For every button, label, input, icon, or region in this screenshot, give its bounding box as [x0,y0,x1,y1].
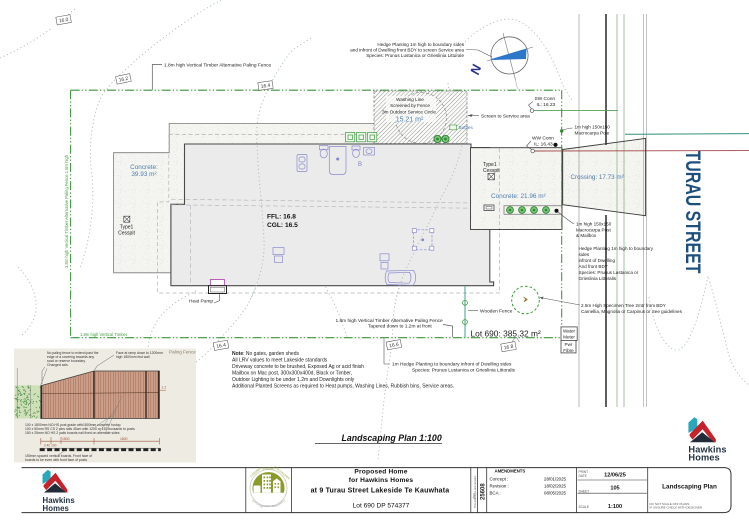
svg-text:Crossing: 17.73 m²: Crossing: 17.73 m² [571,174,624,181]
svg-text:18/02/2025: 18/02/2025 [544,484,567,489]
svg-text:SCALE: SCALE [579,505,589,509]
svg-text:SHEET: SHEET [579,490,590,494]
svg-text:2024: 2024 [472,493,476,499]
svg-text:Driveway concrete to be brushe: Driveway concrete to be brushed, Exposed… [232,364,364,370]
svg-text:Proposed Home: Proposed Home [354,469,407,476]
svg-text:infront of Dwelling: infront of Dwelling [579,258,616,263]
svg-text:TURAU STREET: TURAU STREET [681,151,704,274]
svg-text:Homes: Homes [688,453,719,463]
svg-text:Bottles: Bottles [459,125,474,130]
svg-text:Homes: Homes [43,504,70,513]
svg-text:IL: 16.43: IL: 16.43 [534,142,553,148]
svg-text:Landscaping Plan 1:100: Landscaping Plan 1:100 [342,433,442,443]
svg-text:This drawing is and remains: This drawing is and remains [473,475,477,508]
svg-text:Revision :: Revision : [490,484,509,489]
svg-text:1:100: 1:100 [608,504,622,510]
svg-text:Screen to Service area: Screen to Service area [481,114,530,120]
svg-text:IL: 16.23: IL: 16.23 [537,102,556,108]
svg-text:Paling Fence: Paling Fence [169,350,196,355]
svg-text:1.8m high Vertical Timber Alte: 1.8m high Vertical Timber Alternative Pa… [64,154,69,268]
svg-text:& Mailbox: & Mailbox [576,233,597,238]
svg-text:B: B [358,162,362,168]
svg-text:1.8m high Vertical Timber Alte: 1.8m high Vertical Timber Alternative Pa… [336,318,444,324]
svg-text:at 9 Turau Street Lakeside Te: at 9 Turau Street Lakeside Te Kauwhata [311,488,450,495]
svg-text:Grieslinia Littoralis: Grieslinia Littoralis [579,276,617,281]
svg-text:AMENDMENTS: AMENDMENTS [495,469,526,474]
svg-text:Wooden Fence: Wooden Fence [480,309,513,315]
svg-text:105: 105 [610,486,619,492]
svg-text:WW Conn: WW Conn [532,136,554,142]
svg-text:Cesspit: Cesspit [118,231,135,237]
svg-text:1.8m high Vertical Timber Alte: 1.8m high Vertical Timber Alternative Pa… [164,63,272,69]
svg-text:SW Conn: SW Conn [535,96,556,102]
svg-text:Macrocarpa Post: Macrocarpa Post [576,227,611,232]
svg-text:And front BDY: And front BDY [579,264,608,269]
svg-text:Mailbox on Mac post, 300x300x4: Mailbox on Mac post, 300x300x400d, Black… [232,371,352,377]
svg-text:Concrete:: Concrete: [130,164,158,171]
svg-text:1m high 150x150: 1m high 150x150 [576,222,612,227]
svg-text:1.2: 1.2 [162,386,167,390]
svg-text:12/06/25: 12/06/25 [604,473,626,479]
svg-text:FFL: 16.8: FFL: 16.8 [267,214,296,221]
svg-text:Screened by Fence: Screened by Fence [390,103,430,108]
svg-text:for Hawkins Homes: for Hawkins Homes [349,477,414,484]
svg-text:Species: Prunus Lustanica or: Species: Prunus Lustanica or Grieslinia … [412,368,516,374]
svg-text:Camellia, Magnolia or Carpinus: Camellia, Magnolia or Carpinus or See gu… [581,309,683,314]
svg-text:Landscaping Plan: Landscaping Plan [662,484,717,491]
svg-text:1800: 1800 [120,437,128,441]
svg-text:3m Outdoor Service Circle: 3m Outdoor Service Circle [382,109,436,114]
svg-text:Changed axis.: Changed axis. [47,363,69,367]
svg-text:Additional Planted Screens as: Additional Planted Screens as required t… [232,384,454,390]
svg-text:sides: sides [579,252,590,257]
svg-text:Heat Pump: Heat Pump [189,299,213,305]
svg-text:1m high 150x150: 1m high 150x150 [575,125,611,130]
svg-text:Outdoor Lighting to be under 1: Outdoor Lighting to be under 1.2m and Do… [232,377,355,383]
svg-text:39.93 m²: 39.93 m² [131,171,156,178]
svg-text:BUILDING: BUILDING [262,467,274,471]
svg-text:08/05/2025: 08/05/2025 [544,491,567,496]
svg-text:2.5m High Specimen Tree 2mtr f: 2.5m High Specimen Tree 2mtr from BDY [581,303,666,308]
svg-text:Lot 690 DP 574377: Lot 690 DP 574377 [353,503,410,510]
svg-text:IF UNSURE CHECK WITH DESIGNER: IF UNSURE CHECK WITH DESIGNER [650,506,703,510]
svg-text:Concept :: Concept : [490,477,509,482]
svg-text:Washing Line: Washing Line [396,97,424,102]
svg-text:Meter: Meter [563,335,575,340]
svg-text:boards to be even with front f: boards to be even with front face of pos… [25,458,87,462]
svg-text:1800: 1800 [62,437,70,441]
svg-text:Hedge Planting 1m high to bo: Hedge Planting 1m high to boundary [579,246,654,251]
svg-text:Concrete: 21.96 m²: Concrete: 21.96 m² [491,193,546,200]
svg-text:Species: Prunus Lustanica o: Species: Prunus Lustanica or [579,270,639,275]
svg-text:Tapered down to 1.2m at front: Tapered down to 1.2m at front [368,324,432,330]
svg-text:Note: No gates, garden sheds: Note: No gates, garden sheds [232,351,299,357]
svg-text:25608: 25608 [481,483,487,500]
svg-text:Lot 690: 385.32 m²: Lot 690: 385.32 m² [471,329,542,339]
svg-text:CGL: 16.5: CGL: 16.5 [267,222,298,229]
svg-text:Pwr: Pwr [565,342,573,347]
svg-text:high 1800mm fwd wall: high 1800mm fwd wall [116,355,150,359]
svg-text:DATE: DATE [579,474,587,478]
svg-text:Hedge Planting 1m high to boun: Hedge Planting 1m high to boundary sides [377,42,464,47]
svg-text:1m Hedge Planting to boundary: 1m Hedge Planting to boundary infront of… [392,362,512,368]
svg-text:and infront of Dwelling front: and infront of Dwelling front BDY to scr… [350,48,464,53]
svg-text:Species: Prunus Lustanica or: Species: Prunus Lustanica or Grieslinia … [366,53,464,58]
svg-text:1.8m high Vertical Timber: 1.8m high Vertical Timber [80,332,128,337]
svg-text:0 40 100: 0 40 100 [44,444,57,448]
svg-text:15.21 m²: 15.21 m² [396,117,424,124]
svg-text:All LRV values to meet Lakesid: All LRV values to meet Lakeside standard… [232,358,328,364]
svg-text:BCA :: BCA : [490,491,501,496]
svg-text:Macrocarpa Pole: Macrocarpa Pole [575,130,610,135]
svg-text:Water: Water [563,329,576,334]
svg-text:28/01/2025: 28/01/2025 [544,477,567,482]
svg-text:Fibre: Fibre [563,348,574,353]
